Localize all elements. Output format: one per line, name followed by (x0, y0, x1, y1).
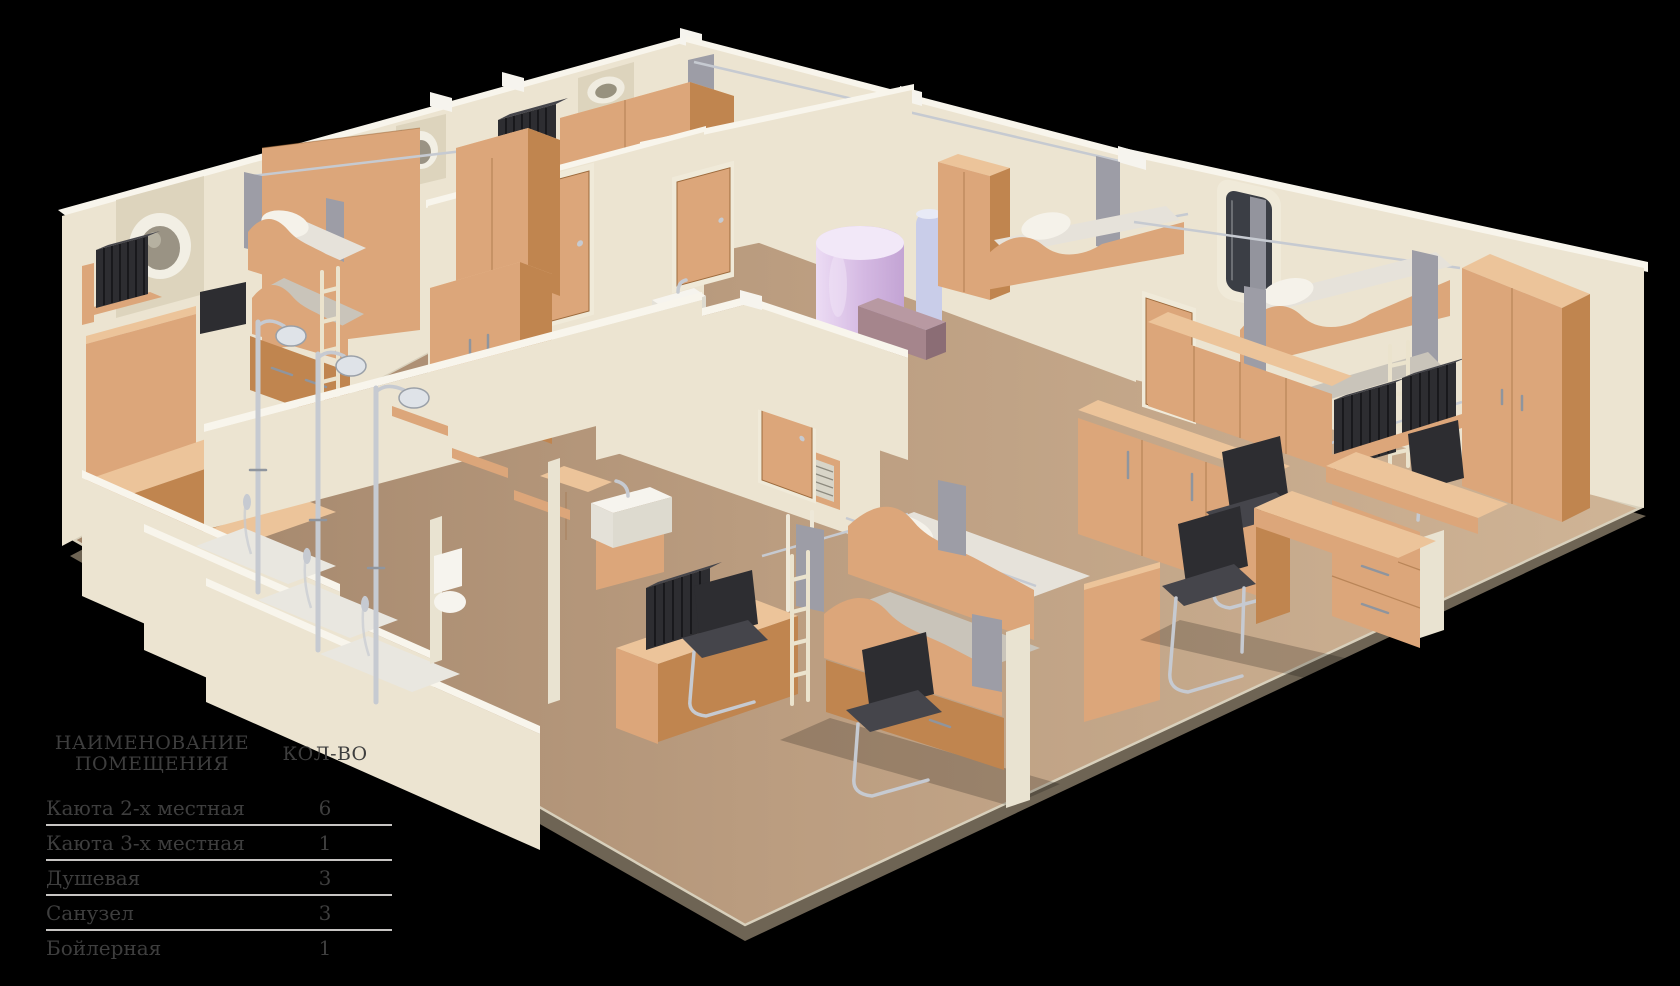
room-name: Каюта 3-х местная (46, 831, 258, 855)
leaning-board (1006, 624, 1030, 808)
shower-head-icon (276, 326, 306, 346)
legend-row: Каюта 2-х местная 6 (46, 791, 392, 826)
legend-header: НАИМЕНОВАНИЕ ПОМЕЩЕНИЯ КОЛ-ВО (46, 733, 392, 775)
curtain (1096, 156, 1120, 252)
room-qty: 1 (258, 936, 392, 960)
legend-header-name-line1: НАИМЕНОВАНИЕ (46, 733, 258, 754)
legend-header-name-line2: ПОМЕЩЕНИЯ (46, 754, 258, 775)
legend-row: Санузел 3 (46, 896, 392, 931)
legend-table: НАИМЕНОВАНИЕ ПОМЕЩЕНИЯ КОЛ-ВО Каюта 2-х … (46, 733, 392, 964)
room-qty: 1 (258, 831, 392, 855)
bed-end-panel (1084, 568, 1160, 722)
shower-head-icon (399, 388, 429, 408)
room-name: Душевая (46, 866, 258, 890)
curtain (972, 614, 1002, 692)
wardrobe (1462, 254, 1590, 522)
legend-header-qty: КОЛ-ВО (258, 733, 392, 775)
accommodation-module-render: НАИМЕНОВАНИЕ ПОМЕЩЕНИЯ КОЛ-ВО Каюта 2-х … (0, 0, 1680, 986)
toilet (434, 548, 462, 594)
toilet (434, 591, 466, 613)
room-qty: 3 (258, 901, 392, 925)
legend-row: Душевая 3 (46, 861, 392, 896)
legend-header-name: НАИМЕНОВАНИЕ ПОМЕЩЕНИЯ (46, 733, 258, 775)
room-name: Санузел (46, 901, 258, 925)
room-name: Бойлерная (46, 936, 258, 960)
legend-row: Каюта 3-х местная 1 (46, 826, 392, 861)
cabin-door (672, 161, 734, 294)
legend-row: Бойлерная 1 (46, 931, 392, 964)
room-name: Каюта 2-х местная (46, 796, 258, 820)
legend-rows: Каюта 2-х местная 6 Каюта 3-х местная 1 … (46, 791, 392, 964)
shower-head-icon (336, 356, 366, 376)
room-qty: 3 (258, 866, 392, 890)
curtain (938, 480, 966, 556)
room-qty: 6 (258, 796, 392, 820)
